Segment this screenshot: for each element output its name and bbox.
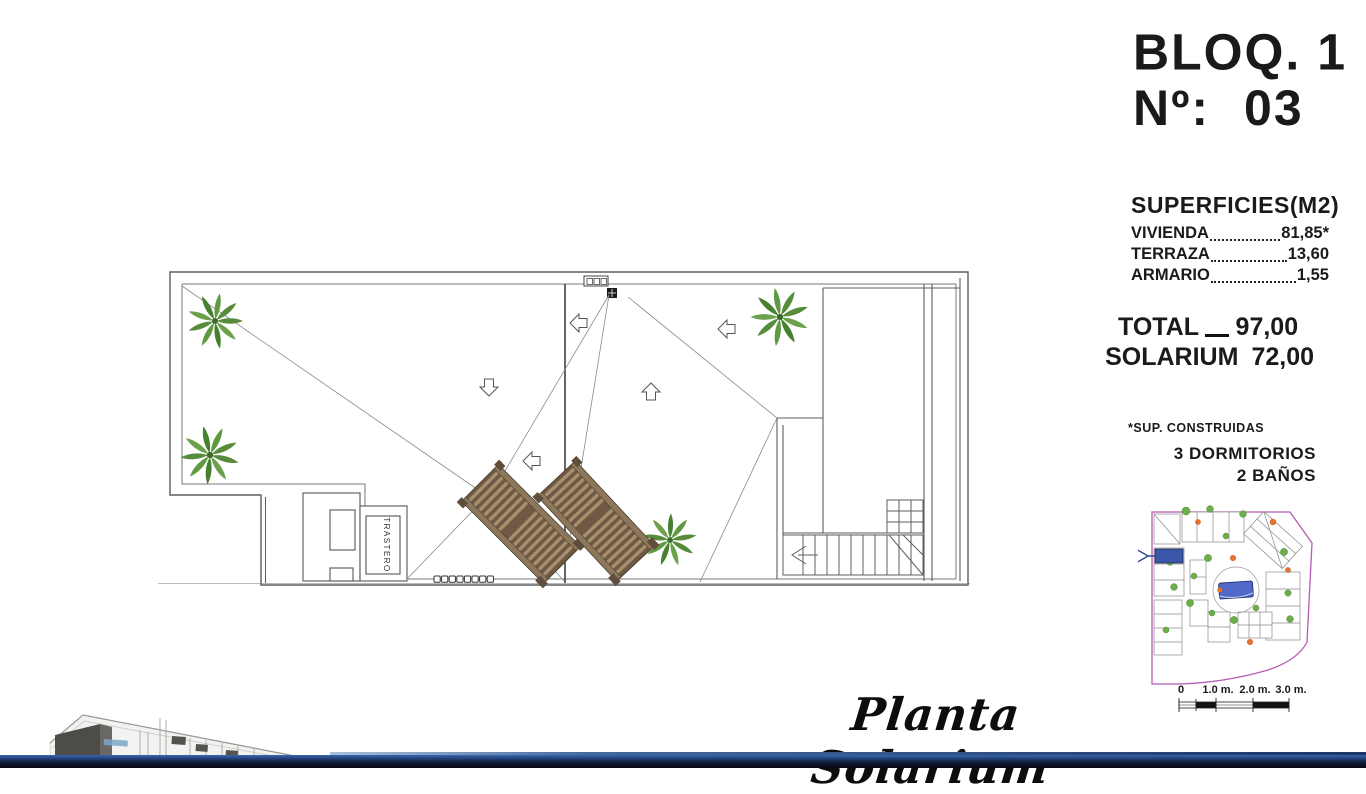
scale-label-3: 3.0 m. xyxy=(1275,684,1306,696)
sheet-header: BLOQ. 1 Nº: 03 xyxy=(1133,24,1348,136)
dotted-leader xyxy=(1211,260,1287,262)
surfaces-title: SUPERFICIES(M2) xyxy=(1131,192,1329,219)
scale-label-0: 0 xyxy=(1178,684,1184,696)
total-value: 97,00 xyxy=(1236,312,1314,342)
dotted-leader xyxy=(1210,239,1280,241)
unit-location-marker xyxy=(1138,549,1183,563)
footer-bar xyxy=(0,755,1366,768)
surface-label: ARMARIO xyxy=(1131,265,1210,286)
building-render xyxy=(0,640,345,768)
surface-row-vivienda: VIVIENDA 81,85* xyxy=(1131,223,1329,244)
surface-value: 1,55 xyxy=(1297,265,1329,286)
total-label: TOTAL xyxy=(1118,312,1199,342)
surface-row-armario: ARMARIO 1,55 xyxy=(1131,265,1329,286)
palm-tree-icon xyxy=(743,279,818,354)
totals-panel: TOTAL 97,00 SOLARIUM 72,00 xyxy=(1118,312,1314,372)
solarium-row: SOLARIUM 72,00 xyxy=(1118,342,1314,372)
solarium-label: SOLARIUM xyxy=(1105,342,1238,372)
palm-tree-icon xyxy=(188,293,243,349)
stairs xyxy=(783,535,923,575)
palm-tree-icon xyxy=(175,419,246,491)
pool xyxy=(1218,581,1253,599)
surface-label: TERRAZA xyxy=(1131,244,1210,265)
scale-label-2: 2.0 m. xyxy=(1239,684,1270,696)
block-label: BLOQ. 1 xyxy=(1133,23,1348,80)
surface-value: 81,85* xyxy=(1281,223,1329,244)
floor-plan: TRASTERO xyxy=(158,263,982,597)
site-plan-minimap xyxy=(1138,500,1328,690)
unit-number-label: Nº: xyxy=(1133,80,1210,136)
scale-bar-graphic xyxy=(1176,697,1298,713)
surface-row-terraza: TERRAZA 13,60 xyxy=(1131,244,1329,265)
feature-dormitorios: 3 DORMITORIOS xyxy=(1056,444,1316,464)
surface-label: VIVIENDA xyxy=(1131,223,1209,244)
scale-label-1: 1.0 m. xyxy=(1202,684,1233,696)
footnote: *SUP. CONSTRUIDAS xyxy=(1128,421,1264,435)
plan-title: Planta Solarium xyxy=(742,688,1123,794)
surfaces-panel: SUPERFICIES(M2) VIVIENDA 81,85* TERRAZA … xyxy=(1131,192,1329,286)
roof-vent xyxy=(584,276,608,286)
surface-value: 13,60 xyxy=(1288,244,1329,265)
trastero-label: TRASTERO xyxy=(382,517,391,573)
dotted-leader xyxy=(1211,281,1296,283)
solarium-value: 72,00 xyxy=(1251,342,1314,372)
right-section-walls xyxy=(777,278,960,581)
location-arrow-icon xyxy=(1138,549,1148,563)
stair-direction-arrow xyxy=(792,546,818,564)
scale-bar: 0 1.0 m. 2.0 m. 3.0 m. xyxy=(1176,684,1306,714)
slope-arrows xyxy=(480,314,735,470)
total-row: TOTAL 97,00 xyxy=(1118,312,1314,342)
feature-banos: 2 BAÑOS xyxy=(1056,466,1316,486)
unit-number-value: 03 xyxy=(1244,80,1304,136)
underscore-rule xyxy=(1205,334,1229,337)
stair-landing-grid xyxy=(887,500,923,533)
